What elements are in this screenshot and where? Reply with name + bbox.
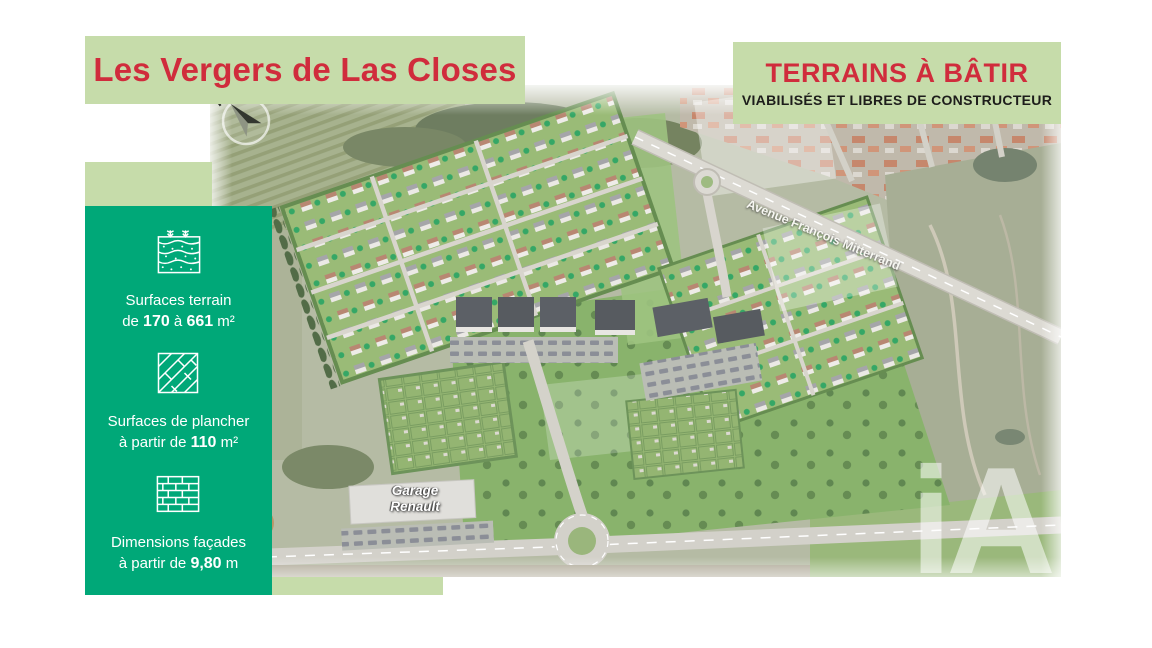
decor-strip-bottom — [272, 577, 443, 595]
agency-watermark: iA — [910, 445, 1050, 577]
garage-label-line2: Renault — [365, 499, 465, 515]
decor-strip-top — [85, 162, 212, 206]
offer-banner: TERRAINS À BÂTIR VIABILISÉS ET LIBRES DE… — [733, 42, 1061, 124]
page-title: Les Vergers de Las Closes — [93, 51, 516, 89]
garage-renault-label: Garage Renault — [365, 483, 465, 514]
aerial-map: N Avenue François Mitterrand Garage Rena… — [210, 85, 1061, 577]
spec-value: à partir de 110 m² — [119, 432, 238, 454]
offer-subtitle: VIABILISÉS ET LIBRES DE CONSTRUCTEUR — [742, 92, 1052, 108]
spec-surfaces-terrain: Surfaces terrain de 170 à 661 m² — [122, 226, 235, 333]
soil-layers-icon — [153, 226, 205, 278]
offer-title: TERRAINS À BÂTIR — [766, 58, 1029, 89]
spec-value: à partir de 9,80 m — [119, 553, 239, 575]
spec-dimensions-facades: Dimensions façades à partir de 9,80 m — [111, 468, 246, 575]
spec-label: Surfaces terrain — [126, 290, 232, 311]
spec-surfaces-plancher: Surfaces de plancher à partir de 110 m² — [108, 347, 250, 454]
garage-label-line1: Garage — [365, 483, 465, 499]
brick-wall-icon — [152, 468, 204, 520]
spec-label: Surfaces de plancher — [108, 411, 250, 432]
title-banner: Les Vergers de Las Closes — [85, 36, 525, 104]
spec-value: de 170 à 661 m² — [122, 311, 235, 333]
specs-sidebar: Surfaces terrain de 170 à 661 m² Surface… — [85, 206, 272, 595]
spec-label: Dimensions façades — [111, 532, 246, 553]
parquet-floor-icon — [152, 347, 204, 399]
flyer-page: N Avenue François Mitterrand Garage Rena… — [0, 0, 1152, 648]
